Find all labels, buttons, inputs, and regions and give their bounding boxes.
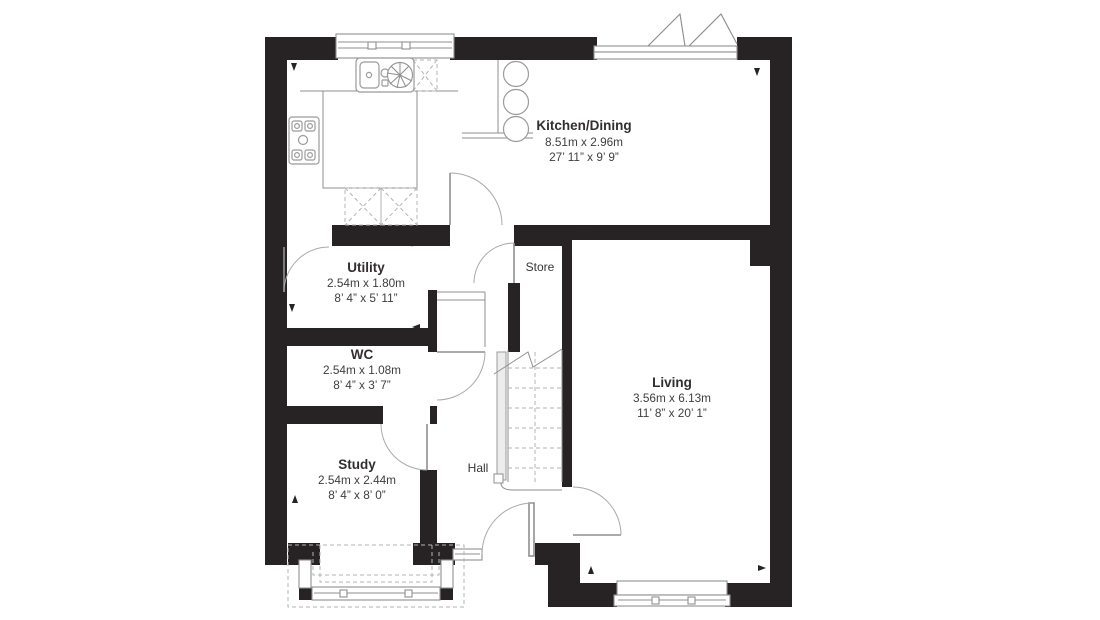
room-dim-imperial: 27’ 11” x 9’ 9” <box>549 150 619 164</box>
wall-store-left <box>508 283 520 352</box>
tick-arrow <box>754 68 760 76</box>
tick-arrow <box>289 304 295 312</box>
wall-kitchen-utility <box>332 225 450 246</box>
label-store: Store <box>526 260 555 274</box>
wc-door <box>437 292 485 400</box>
front-door <box>482 503 534 556</box>
utility-door <box>284 247 329 292</box>
kitchen-hall-door <box>450 173 502 225</box>
room-dim-imperial: 8’ 4” x 8’ 0” <box>328 488 386 502</box>
label-living: Living 3.56m x 6.13m 11’ 8” x 20’ 1” <box>633 375 711 420</box>
room-dim-metric: 2.54m x 1.08m <box>323 363 401 377</box>
room-name: Study <box>338 457 376 472</box>
wall-left <box>265 37 287 565</box>
stool <box>504 117 529 142</box>
kitchen-sink <box>356 58 414 92</box>
wall-hall-west-lower <box>420 470 437 543</box>
appliance-space <box>345 188 417 225</box>
wall-wc-study-jamb <box>430 406 437 424</box>
room-name: Kitchen/Dining <box>536 118 631 133</box>
wall-pier-living <box>750 240 772 266</box>
breakfast-bar <box>462 60 533 142</box>
living-door <box>573 487 621 535</box>
stool <box>504 90 529 115</box>
floor-plan: Kitchen/Dining 8.51m x 2.96m 27’ 11” x 9… <box>0 0 1100 620</box>
room-dim-metric: 3.56m x 6.13m <box>633 391 711 405</box>
kitchen-peninsula <box>323 91 417 188</box>
bay-corner-right <box>440 587 453 600</box>
label-utility: Utility 2.54m x 1.80m 8’ 4” x 5’ 11” <box>327 260 405 305</box>
store-door <box>474 243 514 283</box>
tick-arrow <box>758 565 766 571</box>
wall-kitchen-living <box>572 225 772 240</box>
tick-arrow <box>588 566 594 574</box>
room-dim-imperial: 8’ 4” x 3’ 7” <box>333 378 391 392</box>
dishwasher-space <box>413 60 437 91</box>
stool <box>504 62 529 87</box>
room-dim-metric: 8.51m x 2.96m <box>545 135 623 149</box>
room-name: Living <box>652 375 692 390</box>
wall-hall-west-upper <box>428 290 437 352</box>
room-dim-metric: 2.54m x 2.44m <box>318 473 396 487</box>
wall-wc-study <box>265 406 383 424</box>
floor-plan-page: Kitchen/Dining 8.51m x 2.96m 27’ 11” x 9… <box>0 0 1100 620</box>
wall-utility-wc <box>265 328 437 346</box>
front-door-sidelight <box>453 549 482 560</box>
study-door <box>381 424 427 470</box>
room-dim-metric: 2.54m x 1.80m <box>327 276 405 290</box>
bay-corner-left <box>299 587 312 600</box>
windows <box>336 14 737 606</box>
label-hall: Hall <box>468 461 489 475</box>
kitchen-fixtures <box>289 58 533 225</box>
stairs-newel <box>494 474 503 483</box>
wall-living-bottom-b <box>725 583 792 607</box>
room-name: Utility <box>347 260 385 275</box>
room-name: WC <box>351 347 374 362</box>
wall-right <box>770 37 792 607</box>
wall-store-living <box>562 225 572 487</box>
bifold-doors <box>594 14 737 59</box>
wall-living-bottom-a <box>548 583 617 607</box>
living-window <box>614 581 730 606</box>
hob <box>289 117 319 164</box>
tick-arrow <box>291 63 297 71</box>
wall-top-mid <box>450 37 597 60</box>
tick-arrow <box>292 495 298 503</box>
kitchen-window <box>336 34 454 58</box>
stairs <box>494 349 562 490</box>
label-study: Study 2.54m x 2.44m 8’ 4” x 8’ 0” <box>318 457 396 502</box>
room-dim-imperial: 11’ 8” x 20’ 1” <box>637 406 707 420</box>
label-wc: WC 2.54m x 1.08m 8’ 4” x 3’ 7” <box>323 347 401 392</box>
label-kitchen-dining: Kitchen/Dining 8.51m x 2.96m 27’ 11” x 9… <box>536 118 631 164</box>
room-dim-imperial: 8’ 4” x 5’ 11” <box>334 291 397 305</box>
